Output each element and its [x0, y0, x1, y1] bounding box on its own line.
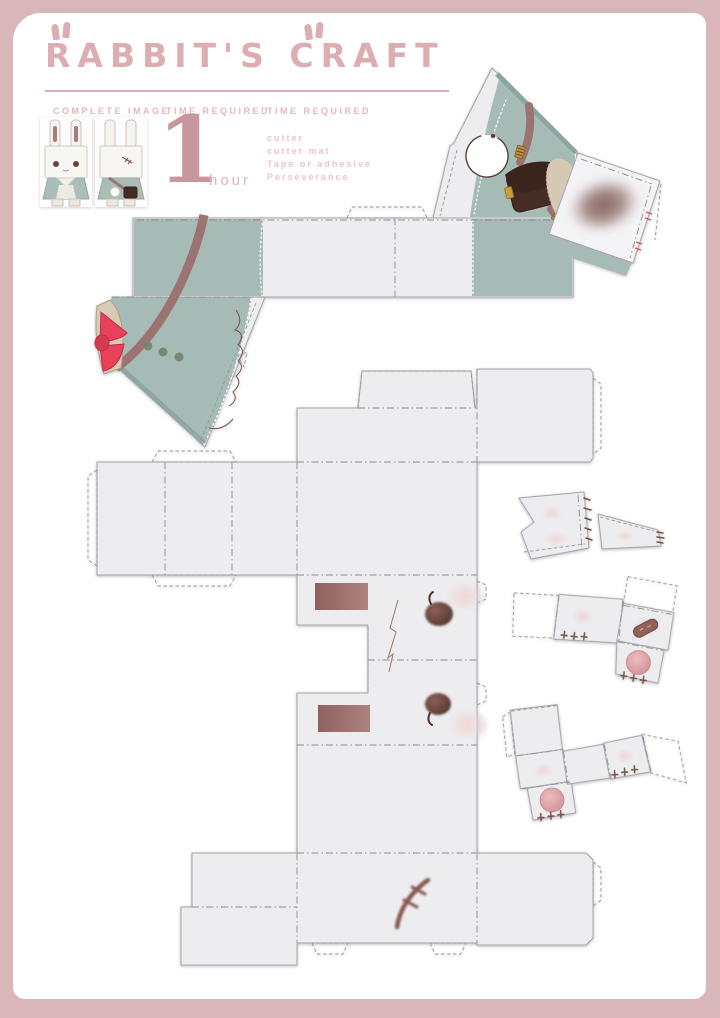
tool-item: Perseverance — [267, 171, 372, 184]
tools-required-label: TIME REQUIRED — [267, 106, 371, 116]
rabbit-back-graphic — [95, 117, 147, 207]
title-underline — [45, 90, 449, 92]
tool-item: Tape or adhesive — [267, 158, 372, 171]
tool-item: cutter mat — [267, 145, 372, 158]
time-unit: hour — [209, 172, 251, 189]
tools-list: cutter cutter mat Tape or adhesive Perse… — [267, 132, 372, 184]
complete-image-front-photo — [40, 117, 92, 207]
page-title: RABBIT'S CRAFT — [45, 36, 445, 75]
craft-sheet: { "header": { "title": "RABBIT'S CRAFT" … — [0, 0, 720, 1018]
rabbit-front-graphic — [40, 117, 92, 207]
complete-image-back-photo — [95, 117, 147, 207]
tool-item: cutter — [267, 132, 372, 145]
complete-image-label: COMPLETE IMAGE — [53, 106, 170, 116]
